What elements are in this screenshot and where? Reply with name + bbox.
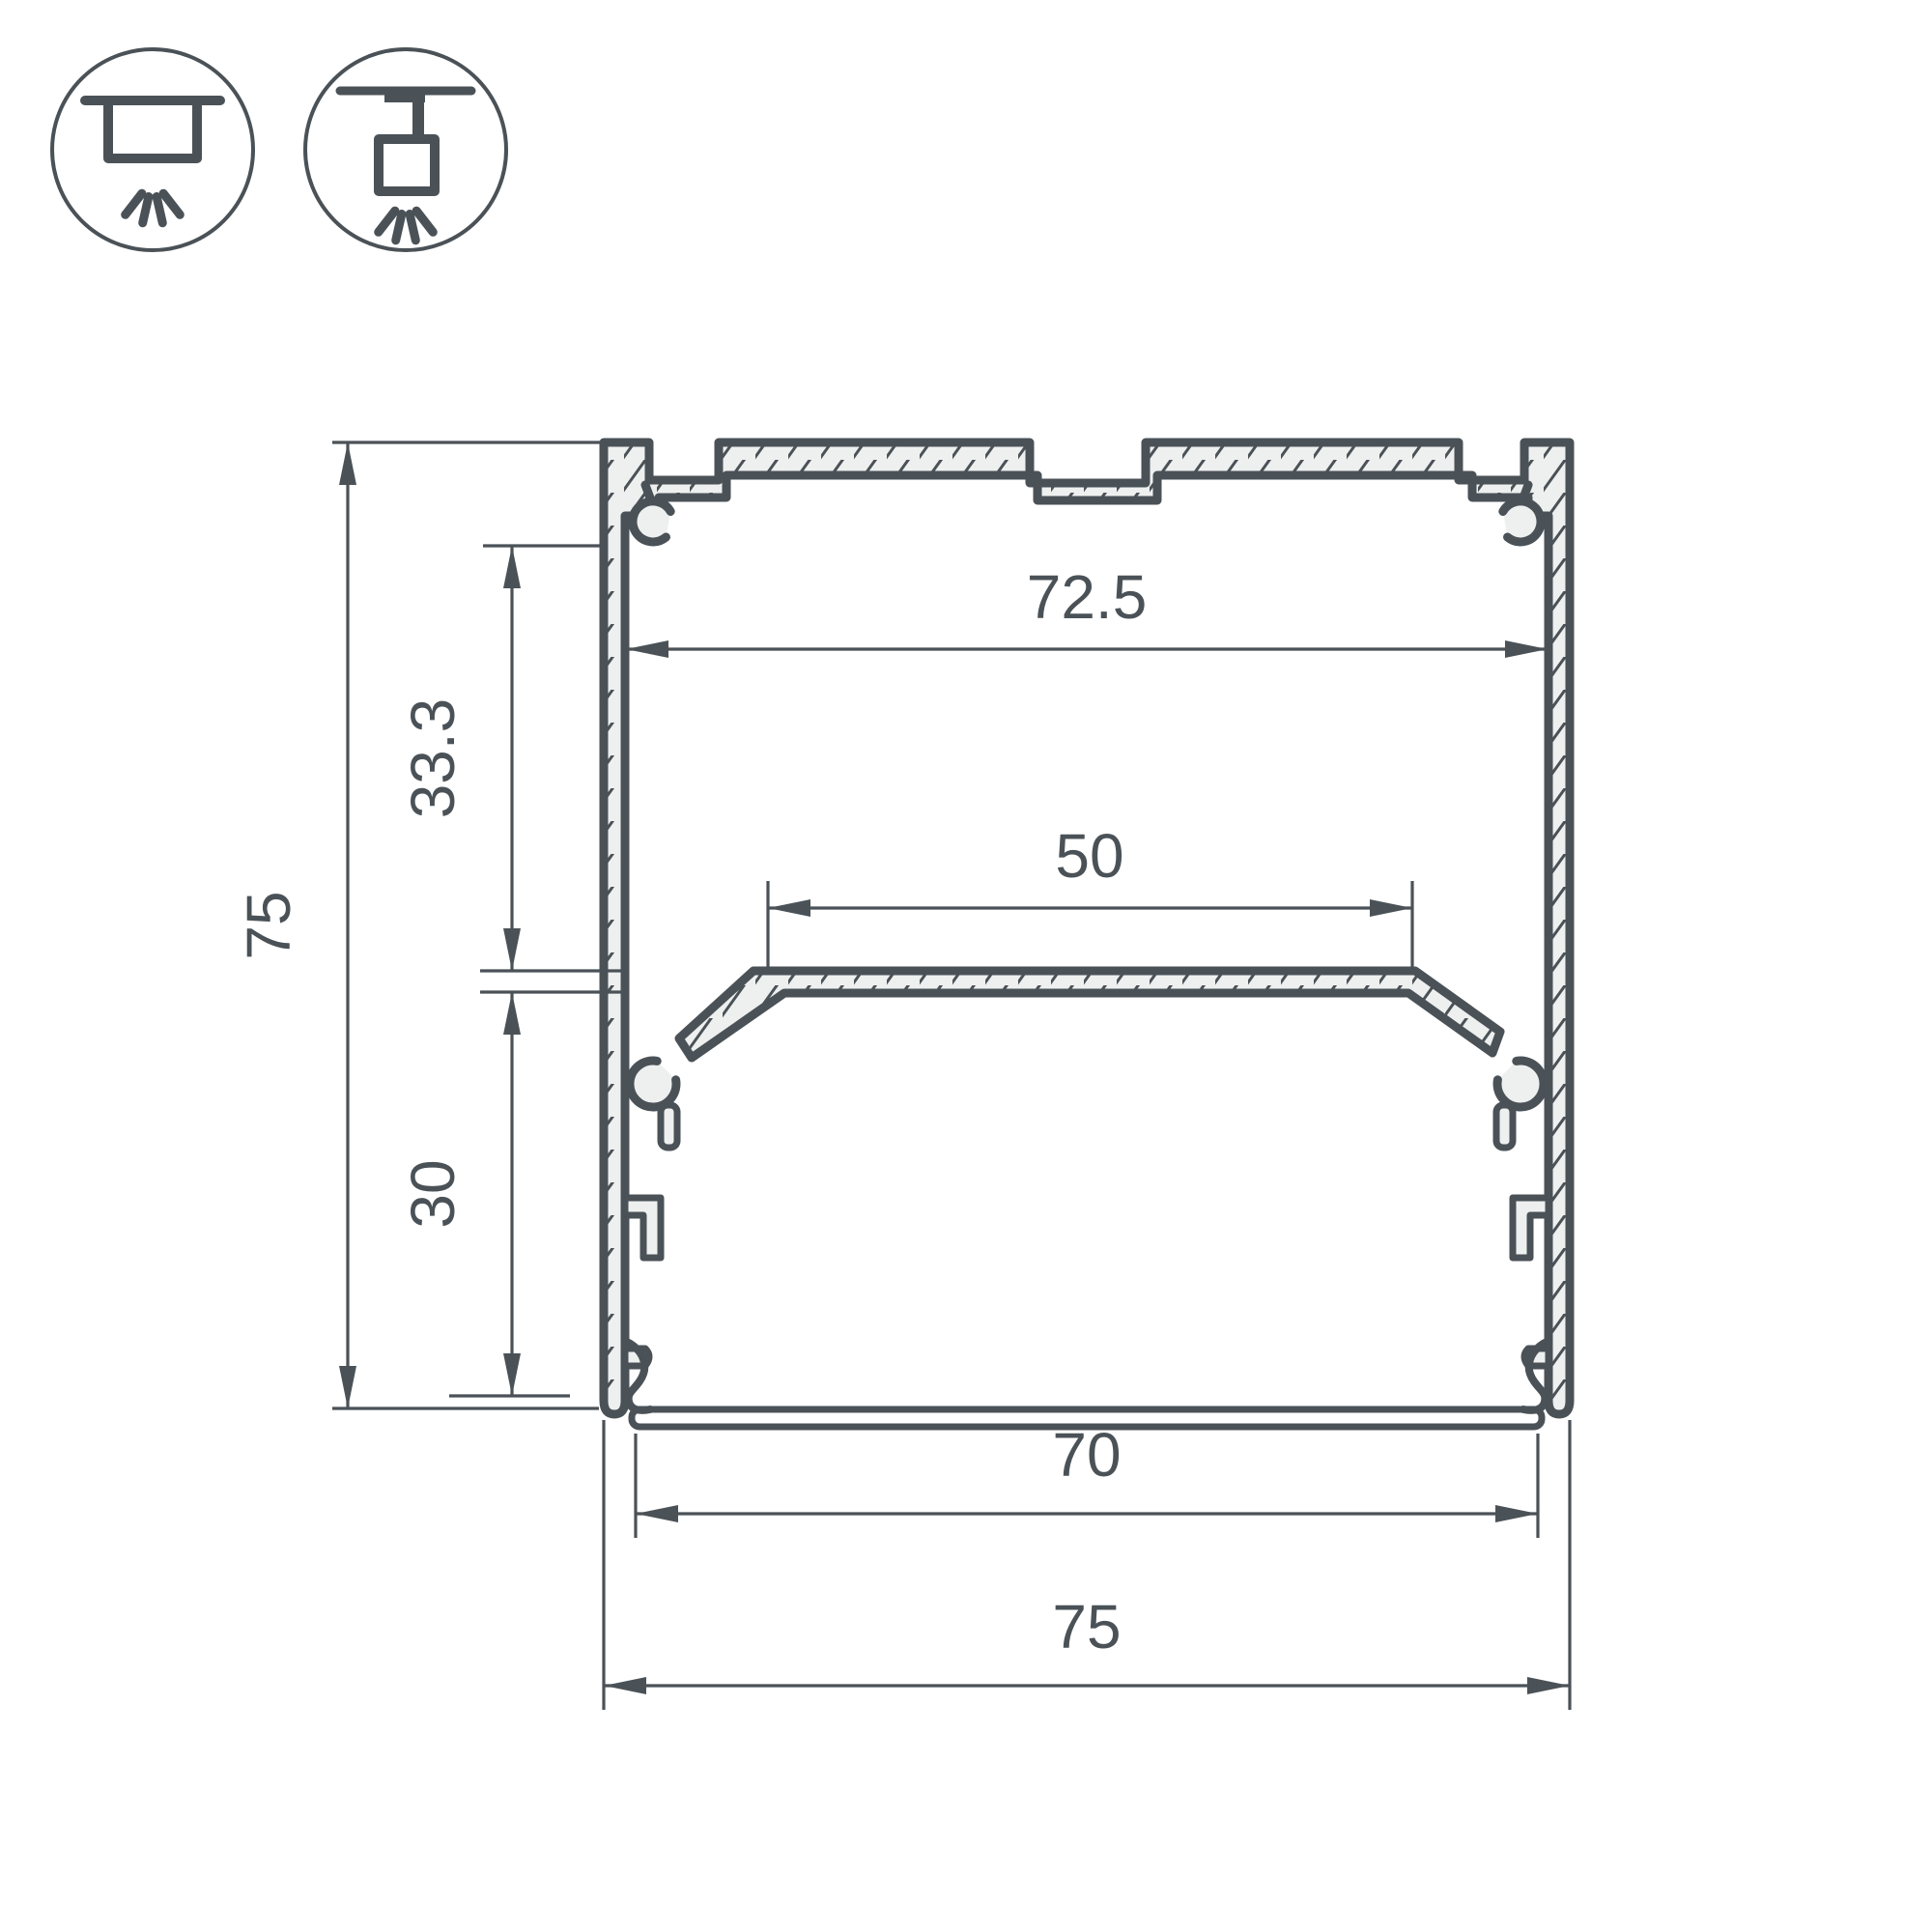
dim-inner-width-top: 72.5 xyxy=(626,562,1548,658)
arrowhead xyxy=(626,640,668,658)
light-rays xyxy=(379,211,434,241)
boss-foot xyxy=(661,1105,677,1148)
arrowhead xyxy=(768,899,810,917)
arrowhead xyxy=(636,1505,678,1522)
boss-foot xyxy=(1496,1105,1513,1148)
arrowhead xyxy=(1370,899,1412,917)
dim-lower-section-height: 30 xyxy=(398,992,570,1396)
hook-left-upper xyxy=(625,1198,661,1258)
screw-boss-top-left xyxy=(633,501,670,542)
surface-mount-icon xyxy=(52,49,253,250)
dim-shelf-width: 50 xyxy=(768,821,1412,968)
technical-drawing-canvas: 72.5 50 33.3 30 xyxy=(0,0,1932,1932)
dim-lower-section-height-label: 30 xyxy=(398,1159,468,1228)
technical-drawing-page: 72.5 50 33.3 30 xyxy=(0,0,1932,1932)
dim-shelf-width-label: 50 xyxy=(1055,821,1123,891)
arrowhead xyxy=(503,1353,521,1396)
screw-boss-mid-right xyxy=(1497,1061,1544,1107)
arrowhead xyxy=(604,1677,646,1694)
arrowhead xyxy=(1495,1505,1538,1522)
dim-upper-section-height: 33.3 xyxy=(398,546,624,992)
dimensions: 72.5 50 33.3 30 xyxy=(234,442,1570,1710)
dim-upper-section-height-label: 33.3 xyxy=(398,698,468,819)
suspension-stem xyxy=(412,91,424,141)
led-shelf xyxy=(679,971,1500,1058)
arrowhead xyxy=(503,928,521,971)
arrowhead xyxy=(1527,1677,1570,1694)
dim-overall-height-label: 75 xyxy=(234,891,303,959)
screw-boss-mid-left xyxy=(630,1061,676,1107)
hook-right-upper xyxy=(1513,1198,1548,1258)
dim-overall-width-label: 75 xyxy=(1052,1592,1121,1662)
icon-circle xyxy=(52,49,253,250)
bottom-curls xyxy=(625,1341,1548,1410)
boss-stem xyxy=(1522,485,1528,500)
luminaire-body xyxy=(108,100,197,158)
arrowhead xyxy=(339,1366,356,1408)
dim-inner-width-top-label: 72.5 xyxy=(1027,562,1148,632)
arrowhead xyxy=(503,992,521,1035)
dim-bottom-opening-width: 70 xyxy=(636,1420,1538,1538)
pendant-mount-icon xyxy=(305,49,506,250)
light-rays xyxy=(126,193,181,223)
arrowhead xyxy=(1505,640,1548,658)
arrowhead xyxy=(503,546,521,588)
boss-stem xyxy=(645,485,651,500)
dim-overall-height: 75 xyxy=(234,442,601,1408)
luminaire-body xyxy=(379,139,435,191)
dim-bottom-opening-width-label: 70 xyxy=(1052,1420,1121,1490)
inner-wall-hooks xyxy=(625,1198,1548,1366)
screw-boss-top-right xyxy=(1503,501,1541,542)
arrowhead xyxy=(339,442,356,485)
